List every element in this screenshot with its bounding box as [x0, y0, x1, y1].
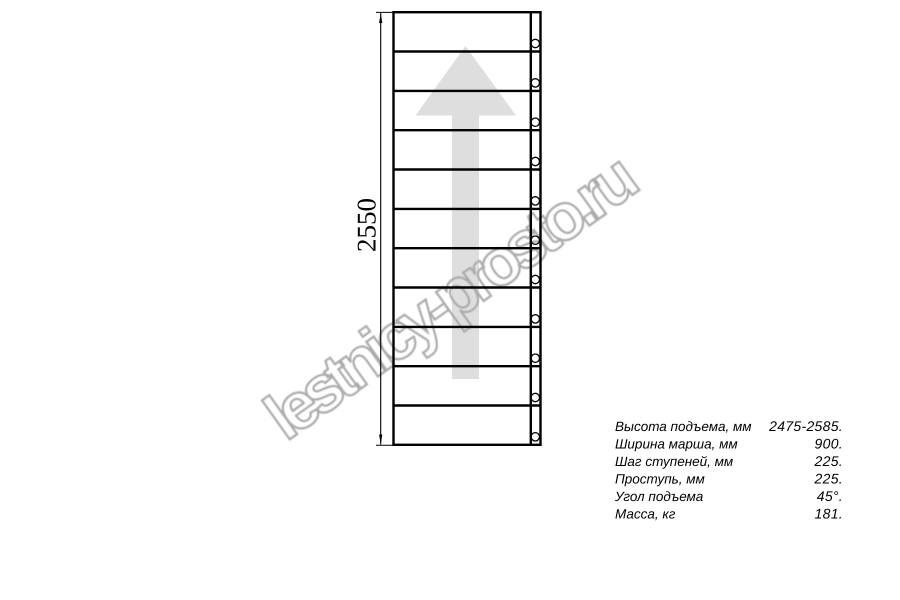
- svg-text:900.: 900.: [815, 436, 843, 452]
- svg-text:181.: 181.: [815, 506, 843, 522]
- svg-text:Шаг ступеней, мм: Шаг ступеней, мм: [615, 454, 733, 469]
- svg-text:Ширина марша, мм: Ширина марша, мм: [615, 437, 738, 452]
- svg-text:225.: 225.: [814, 471, 843, 487]
- svg-text:Масса, кг: Масса, кг: [615, 507, 676, 522]
- svg-text:Высота подъема, мм: Высота подъема, мм: [615, 419, 751, 434]
- svg-text:2550: 2550: [352, 198, 382, 252]
- svg-text:225.: 225.: [814, 453, 843, 469]
- svg-text:Проступь, мм: Проступь, мм: [615, 472, 705, 487]
- svg-text:2475-2585.: 2475-2585.: [768, 418, 843, 434]
- svg-text:Угол подъема: Угол подъема: [614, 489, 704, 504]
- svg-text:45°.: 45°.: [817, 488, 843, 504]
